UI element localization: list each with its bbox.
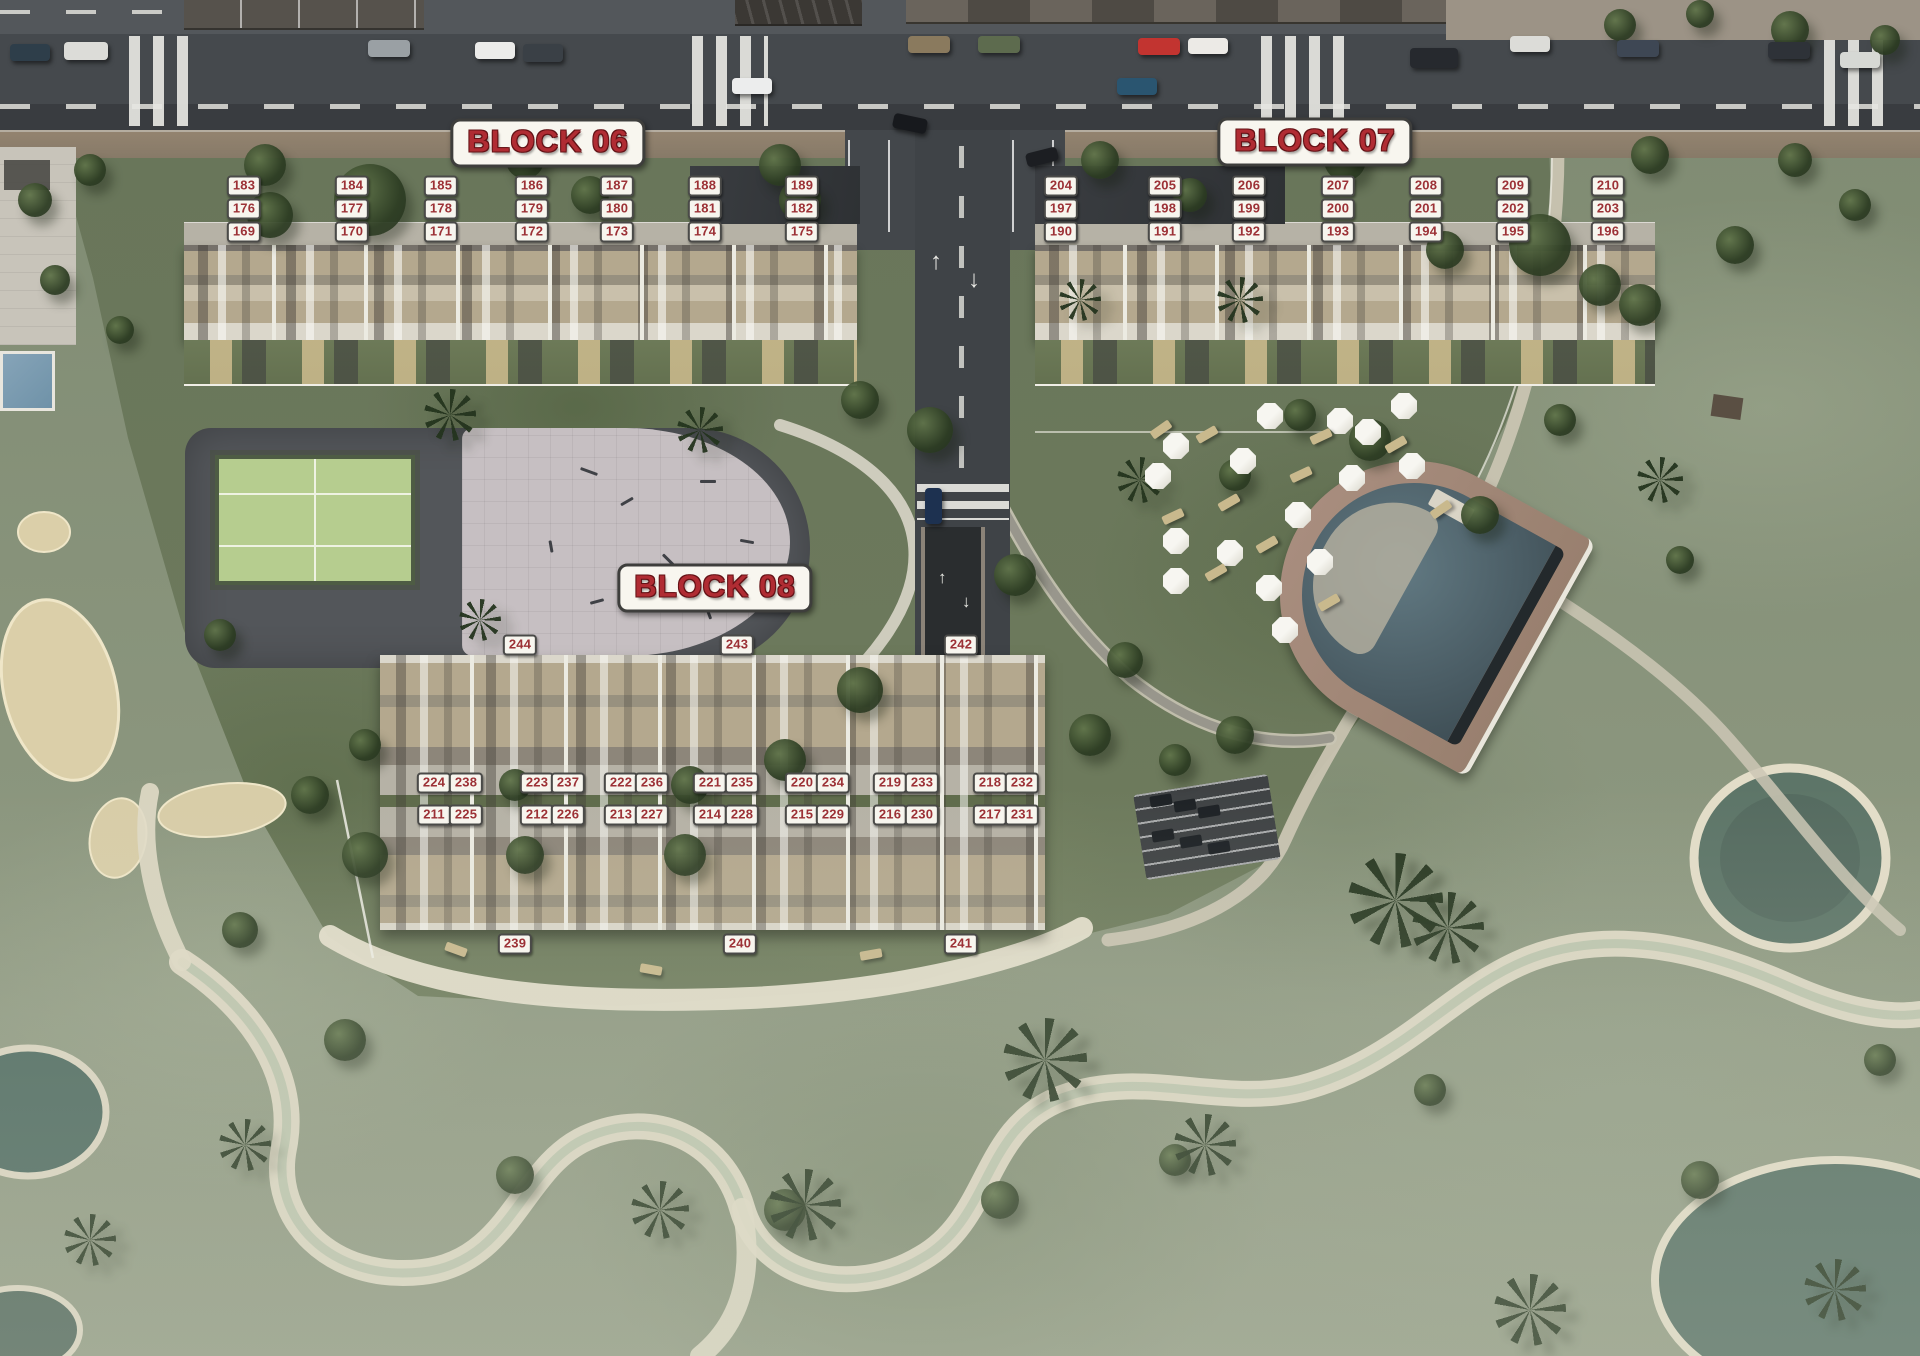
unit-label-228[interactable]: 228: [725, 805, 759, 826]
unit-label-178[interactable]: 178: [424, 199, 458, 220]
unit-label-238[interactable]: 238: [449, 773, 483, 794]
unit-label-224[interactable]: 224: [417, 773, 451, 794]
tree: [1619, 284, 1661, 326]
tree: [342, 832, 388, 878]
central-road-dashes: [959, 146, 964, 476]
unit-label-220[interactable]: 220: [785, 773, 819, 794]
tree: [1839, 189, 1871, 221]
tree: [1069, 714, 1111, 756]
tree: [506, 836, 544, 874]
unit-label-206[interactable]: 206: [1232, 176, 1266, 197]
unit-label-175[interactable]: 175: [785, 222, 819, 243]
lane-dashes-top: [0, 10, 175, 14]
street-building-roof: [906, 0, 1446, 24]
unit-label-211[interactable]: 211: [417, 805, 451, 826]
tree: [1579, 264, 1621, 306]
unit-label-195[interactable]: 195: [1496, 222, 1530, 243]
car: [475, 42, 515, 59]
palm-tree: [1059, 279, 1101, 321]
car: [523, 44, 563, 62]
unit-label-235[interactable]: 235: [725, 773, 759, 794]
tree: [1604, 9, 1636, 41]
unit-label-196[interactable]: 196: [1591, 222, 1625, 243]
car: [10, 44, 50, 61]
unit-label-213[interactable]: 213: [604, 805, 638, 826]
unit-label-183[interactable]: 183: [227, 176, 261, 197]
unit-label-177[interactable]: 177: [335, 199, 369, 220]
unit-label-234[interactable]: 234: [816, 773, 850, 794]
tree: [349, 729, 381, 761]
car: [1617, 40, 1659, 57]
palm-tree: [64, 1214, 116, 1266]
unit-label-239[interactable]: 239: [498, 934, 532, 955]
tree: [1870, 25, 1900, 55]
unit-label-197[interactable]: 197: [1044, 199, 1078, 220]
tree: [1414, 1074, 1446, 1106]
unit-label-242[interactable]: 242: [944, 635, 978, 656]
car: [925, 488, 942, 524]
unit-label-174[interactable]: 174: [688, 222, 722, 243]
block06-gardens: [184, 340, 857, 386]
car: [64, 42, 108, 60]
umbrella: [1145, 463, 1171, 489]
block-title-block-08: BLOCK 08: [617, 564, 812, 613]
unit-label-171[interactable]: 171: [424, 222, 458, 243]
ramp-arrow-down-icon: ↓: [962, 592, 971, 612]
car: [1510, 36, 1550, 52]
unit-label-180[interactable]: 180: [600, 199, 634, 220]
unit-label-229[interactable]: 229: [816, 805, 850, 826]
umbrella: [1256, 575, 1282, 601]
palm-tree: [631, 1181, 689, 1239]
unit-label-208[interactable]: 208: [1409, 176, 1443, 197]
unit-label-215[interactable]: 215: [785, 805, 819, 826]
tree: [994, 554, 1036, 596]
palm-tree: [1003, 1018, 1087, 1102]
palm-tree: [424, 389, 476, 441]
tree: [837, 667, 883, 713]
umbrella: [1230, 448, 1256, 474]
unit-label-244[interactable]: 244: [503, 635, 537, 656]
unit-label-243[interactable]: 243: [720, 635, 754, 656]
tree: [1686, 0, 1714, 28]
unit-label-217[interactable]: 217: [973, 805, 1007, 826]
umbrella: [1339, 465, 1365, 491]
unit-label-209[interactable]: 209: [1496, 176, 1530, 197]
palm-tree: [677, 407, 723, 453]
car: [368, 40, 410, 57]
unit-label-204[interactable]: 204: [1044, 176, 1078, 197]
tree: [324, 1019, 366, 1061]
unit-label-186[interactable]: 186: [515, 176, 549, 197]
padel-court: [215, 455, 415, 585]
tree: [907, 407, 953, 453]
unit-label-221[interactable]: 221: [693, 773, 727, 794]
umbrella: [1163, 528, 1189, 554]
umbrella: [1399, 453, 1425, 479]
unit-label-179[interactable]: 179: [515, 199, 549, 220]
road-arrow-down-icon: ↓: [968, 266, 980, 294]
unit-label-190[interactable]: 190: [1044, 222, 1078, 243]
unit-label-198[interactable]: 198: [1148, 199, 1182, 220]
tree: [1778, 143, 1812, 177]
unit-label-230[interactable]: 230: [905, 805, 939, 826]
unit-label-240[interactable]: 240: [723, 934, 757, 955]
tree: [40, 265, 70, 295]
gym-equipment: [700, 480, 716, 483]
car: [1410, 48, 1458, 68]
west-lap-pool: [0, 351, 55, 411]
unit-label-203[interactable]: 203: [1591, 199, 1625, 220]
tree: [1716, 226, 1754, 264]
car: [1768, 42, 1810, 59]
tree: [18, 183, 52, 217]
umbrella: [1217, 540, 1243, 566]
unit-label-227[interactable]: 227: [635, 805, 669, 826]
ramp-arrow-up-icon: ↑: [938, 568, 947, 588]
umbrella: [1163, 433, 1189, 459]
crosswalk: [129, 36, 201, 126]
lane-dashes: [0, 104, 1920, 109]
unit-label-216[interactable]: 216: [873, 805, 907, 826]
unit-label-207[interactable]: 207: [1321, 176, 1355, 197]
palm-tree: [1217, 277, 1263, 323]
car: [1840, 52, 1880, 68]
unit-label-232[interactable]: 232: [1005, 773, 1039, 794]
site-plan: ↑ ↓ ↑ ↓ BLOCK 06BLOCK 07BLOCK 08 1831841…: [0, 0, 1920, 1356]
crosswalk: [1261, 36, 1345, 126]
car: [1117, 78, 1157, 95]
unit-label-218[interactable]: 218: [973, 773, 1007, 794]
tree: [1159, 744, 1191, 776]
block07-gardens: [1035, 340, 1655, 386]
unit-label-225[interactable]: 225: [449, 805, 483, 826]
tree: [1284, 399, 1316, 431]
car: [1188, 38, 1228, 54]
umbrella: [1391, 393, 1417, 419]
unit-label-187[interactable]: 187: [600, 176, 634, 197]
unit-label-237[interactable]: 237: [551, 773, 585, 794]
unit-label-192[interactable]: 192: [1232, 222, 1266, 243]
unit-label-191[interactable]: 191: [1148, 222, 1182, 243]
street-building-roof: [184, 0, 424, 30]
tree: [1461, 496, 1499, 534]
tree: [1544, 404, 1576, 436]
unit-label-219[interactable]: 219: [873, 773, 907, 794]
umbrella: [1257, 403, 1283, 429]
tree: [496, 1156, 534, 1194]
unit-label-172[interactable]: 172: [515, 222, 549, 243]
tree: [664, 834, 706, 876]
unit-label-210[interactable]: 210: [1591, 176, 1625, 197]
umbrella: [1355, 419, 1381, 445]
palm-tree: [1412, 892, 1484, 964]
palm-tree: [1637, 457, 1683, 503]
road-arrow-up-icon: ↑: [930, 248, 942, 276]
unit-label-193[interactable]: 193: [1321, 222, 1355, 243]
unit-label-236[interactable]: 236: [635, 773, 669, 794]
unit-label-184[interactable]: 184: [335, 176, 369, 197]
tree: [106, 316, 134, 344]
unit-label-212[interactable]: 212: [520, 805, 554, 826]
tree: [1666, 546, 1694, 574]
unit-label-222[interactable]: 222: [604, 773, 638, 794]
unit-label-201[interactable]: 201: [1409, 199, 1443, 220]
block06-building: [184, 245, 857, 340]
tree: [1081, 141, 1119, 179]
umbrella: [1307, 549, 1333, 575]
umbrella: [1285, 502, 1311, 528]
unit-label-231[interactable]: 231: [1005, 805, 1039, 826]
palm-tree: [769, 1169, 841, 1241]
unit-label-226[interactable]: 226: [551, 805, 585, 826]
unit-label-205[interactable]: 205: [1148, 176, 1182, 197]
car: [978, 36, 1020, 53]
palm-tree: [459, 599, 501, 641]
unit-label-185[interactable]: 185: [424, 176, 458, 197]
tree: [204, 619, 236, 651]
tree: [1864, 1044, 1896, 1076]
car: [908, 36, 950, 53]
umbrella: [1272, 617, 1298, 643]
unit-label-182[interactable]: 182: [785, 199, 819, 220]
tree: [1681, 1161, 1719, 1199]
unit-label-188[interactable]: 188: [688, 176, 722, 197]
tree: [222, 912, 258, 948]
palm-tree: [219, 1119, 271, 1171]
palm-tree: [1804, 1259, 1866, 1321]
block-title-block-06: BLOCK 06: [450, 119, 645, 168]
tree: [1216, 716, 1254, 754]
car: [732, 78, 772, 94]
tree: [841, 381, 879, 419]
palm-tree: [1494, 1274, 1566, 1346]
unit-label-169[interactable]: 169: [227, 222, 261, 243]
unit-label-199[interactable]: 199: [1232, 199, 1266, 220]
unit-label-202[interactable]: 202: [1496, 199, 1530, 220]
unit-label-223[interactable]: 223: [520, 773, 554, 794]
golf-hut: [1711, 394, 1744, 420]
north-sidewalk: [1446, 0, 1920, 40]
unit-label-194[interactable]: 194: [1409, 222, 1443, 243]
unit-label-176[interactable]: 176: [227, 199, 261, 220]
car: [1138, 38, 1180, 55]
umbrella: [1327, 408, 1353, 434]
unit-label-241[interactable]: 241: [944, 934, 978, 955]
tree: [1631, 136, 1669, 174]
umbrella: [1163, 568, 1189, 594]
tree: [981, 1181, 1019, 1219]
tree: [1107, 642, 1143, 678]
unit-label-181[interactable]: 181: [688, 199, 722, 220]
tree: [74, 154, 106, 186]
palm-tree: [1174, 1114, 1236, 1176]
unit-label-233[interactable]: 233: [905, 773, 939, 794]
unit-label-170[interactable]: 170: [335, 222, 369, 243]
tree: [291, 776, 329, 814]
street-building-roof: [735, 0, 862, 26]
block-title-block-07: BLOCK 07: [1217, 118, 1412, 167]
unit-label-214[interactable]: 214: [693, 805, 727, 826]
unit-label-189[interactable]: 189: [785, 176, 819, 197]
unit-label-200[interactable]: 200: [1321, 199, 1355, 220]
unit-label-173[interactable]: 173: [600, 222, 634, 243]
